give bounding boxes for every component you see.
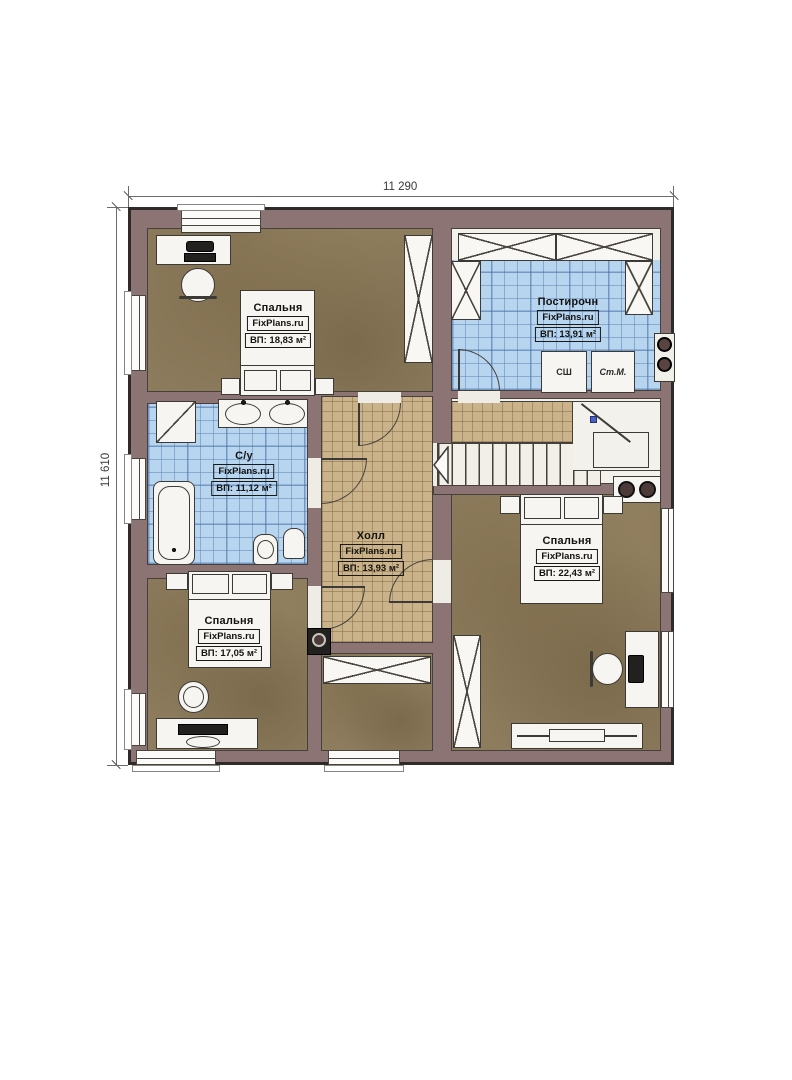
room-name: Спальня: [205, 615, 254, 627]
room-label-bedroom-bottom-left: Спальня FixPlans.ru ВП: 17,05 м²: [196, 615, 262, 661]
boiler-ring-icon: [657, 337, 672, 352]
door-leaf: [321, 458, 367, 460]
dimension-top-ext: [128, 186, 129, 207]
room-label-bathroom: С/у FixPlans.ru ВП: 11,12 м²: [211, 450, 277, 496]
stair-dot: [590, 416, 597, 423]
stair-arrow: [433, 446, 449, 484]
window-sill: [177, 204, 265, 211]
stair-arrow-icon: [433, 446, 449, 484]
nightstand: [271, 573, 293, 590]
stair-rail-inner: [593, 432, 649, 468]
brand-watermark: FixPlans.ru: [198, 629, 259, 644]
room-name: Постирочн: [538, 296, 599, 308]
room-area: ВП: 18,83 м²: [245, 333, 311, 348]
dimension-left-ext: [107, 765, 128, 766]
dimension-top-ext: [673, 186, 674, 207]
window: [661, 508, 674, 593]
door-leaf: [389, 601, 433, 603]
sink-bowl-icon: [639, 481, 656, 498]
door-leaf: [321, 586, 365, 588]
chair-back: [179, 296, 217, 299]
faucet-icon: [241, 400, 246, 405]
plant-pot-inner: [183, 686, 204, 708]
window: [136, 750, 216, 765]
dimension-left-label: 11 610: [100, 442, 112, 498]
wardrobe: [453, 635, 481, 748]
bidet: [283, 528, 305, 559]
office-chair: [592, 653, 623, 685]
bed-pillow: [244, 370, 277, 391]
cabinet-left: [451, 261, 481, 320]
room-label-laundry: Постирочн FixPlans.ru ВП: 13,91 м²: [535, 296, 601, 342]
door-gap: [358, 392, 401, 403]
room-area: ВП: 13,93 м²: [338, 561, 404, 576]
window-sill: [124, 291, 132, 375]
bed-pillow: [524, 497, 561, 519]
bed-blanket-line: [240, 365, 315, 366]
room-name: Спальня: [543, 535, 592, 547]
room-label-hall: Холл FixPlans.ru ВП: 13,93 м²: [338, 530, 404, 576]
room-area: ВП: 17,05 м²: [196, 646, 262, 661]
cabinet-top: [458, 233, 556, 261]
window-sill: [124, 454, 132, 524]
floor-stair-landing-tile: [451, 401, 573, 443]
chair-back: [590, 651, 593, 687]
room-name: Холл: [357, 530, 385, 542]
sink-icon: [225, 403, 261, 425]
faucet-icon: [285, 400, 290, 405]
laptop-icon: [178, 724, 228, 735]
dimension-left-line: [116, 207, 117, 765]
brand-watermark: FixPlans.ru: [247, 316, 308, 331]
door-gap: [433, 560, 451, 603]
door-leaf: [458, 349, 460, 391]
nightstand: [166, 573, 188, 590]
printer-icon: [184, 253, 216, 262]
desk-chair: [186, 736, 220, 748]
boiler-circle-icon: [312, 633, 326, 647]
door-gap: [308, 458, 321, 508]
door-leaf: [358, 403, 360, 446]
bed-blanket-line: [188, 599, 271, 600]
boiler-ring-icon: [657, 357, 672, 372]
floor-plan: СШ Ст.М.: [128, 207, 674, 765]
window-sill: [124, 689, 132, 750]
room-name: С/у: [235, 450, 253, 462]
window-sill: [132, 765, 220, 772]
washer-box: Ст.М.: [591, 351, 635, 393]
nightstand: [315, 378, 334, 395]
brand-watermark: FixPlans.ru: [537, 310, 598, 325]
room-label-bedroom-top-left: Спальня FixPlans.ru ВП: 18,83 м²: [245, 302, 311, 348]
nightstand: [603, 496, 623, 514]
monitor-icon: [628, 655, 644, 683]
brand-watermark: FixPlans.ru: [340, 544, 401, 559]
toilet-bowl: [257, 540, 274, 559]
dryer-box: СШ: [541, 351, 587, 393]
window: [131, 458, 146, 520]
bed-pillow: [564, 497, 599, 519]
brand-watermark: FixPlans.ru: [213, 464, 274, 479]
window: [131, 295, 146, 371]
room-name: Спальня: [254, 302, 303, 314]
bed-blanket-line: [520, 524, 603, 525]
room-area: ВП: 11,12 м²: [211, 481, 277, 496]
window: [328, 750, 400, 765]
window: [181, 210, 261, 226]
cabinet-top: [556, 233, 653, 261]
nightstand: [500, 496, 520, 514]
dimension-left-ext: [107, 207, 128, 208]
brand-watermark: FixPlans.ru: [536, 549, 597, 564]
sink-icon: [269, 403, 305, 425]
wardrobe: [404, 235, 433, 363]
room-area: ВП: 22,43 м²: [534, 566, 600, 581]
cabinet-right: [625, 261, 653, 315]
room-area: ВП: 13,91 м²: [535, 327, 601, 342]
dimension-top-label: 11 290: [383, 181, 417, 193]
nightstand: [221, 378, 240, 395]
door-gap: [458, 391, 500, 403]
window-sill: [324, 765, 404, 772]
room-label-bedroom-right: Спальня FixPlans.ru ВП: 22,43 м²: [534, 535, 600, 581]
door-gap: [308, 586, 321, 631]
printer-icon: [186, 241, 214, 252]
drain-icon: [172, 548, 176, 552]
bed-pillow: [280, 370, 311, 391]
closet-wardrobe: [323, 656, 431, 684]
window: [661, 631, 674, 708]
tv-icon: [549, 729, 605, 742]
bed-pillow: [232, 574, 267, 594]
window: [131, 693, 146, 746]
washer-label: Ст.М.: [600, 367, 627, 377]
dimension-top-line: [128, 196, 674, 197]
dryer-label: СШ: [556, 367, 572, 377]
bed-pillow: [192, 574, 229, 594]
shower: [156, 401, 196, 443]
